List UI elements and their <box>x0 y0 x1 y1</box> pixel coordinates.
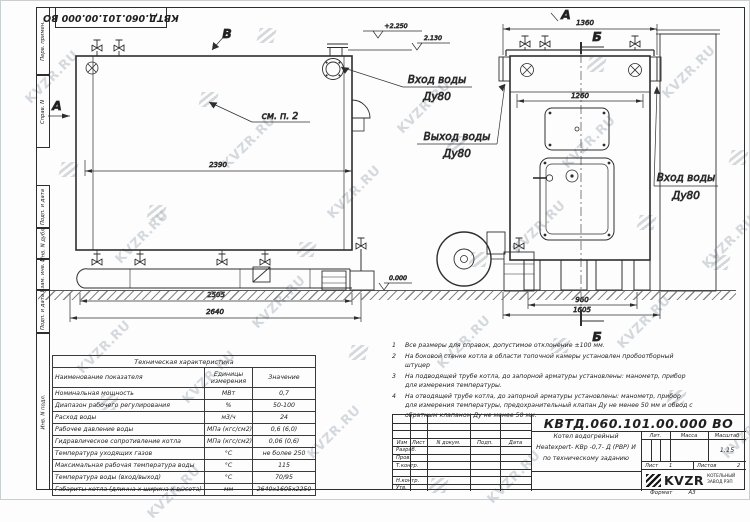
mass-label: Масса <box>670 433 708 439</box>
tb-col-data: Дата <box>501 440 530 446</box>
margin-box-sprav-n: Справ. N <box>36 75 50 148</box>
inlet-label: Вход воды <box>408 74 467 86</box>
tech-table-row: Расход водым3/ч24 <box>53 412 316 424</box>
tech-table-cell: 0,06 (0,6) <box>253 436 316 448</box>
see-note-label: см. п. 2 <box>262 111 299 122</box>
valve-icon <box>630 36 640 47</box>
dim-text: 1605 <box>573 306 591 314</box>
tb-col-ndokum: N докум. <box>428 440 469 446</box>
inlet-dn-label: Ду80 <box>422 91 451 103</box>
tech-table-cell: Температура воды (вход/выход) <box>53 472 205 484</box>
skid-frame <box>77 269 352 288</box>
tech-table-row: Температура воды (вход/выход)°С70/95 <box>53 472 316 484</box>
valve-icon <box>114 40 124 51</box>
note-item: 3На подводящей трубе котла, до запорной … <box>392 372 694 391</box>
outlet-label: Выход воды <box>424 131 491 143</box>
sheet-label: Лист <box>645 463 658 469</box>
dim-text: 2640 <box>206 308 224 316</box>
tech-table-cell: МВт <box>205 388 253 400</box>
tech-table-cell: не более 250 <box>253 448 316 460</box>
boiler-body-side <box>76 56 352 250</box>
support-feet <box>524 260 650 290</box>
view-marker-a: А <box>560 7 571 22</box>
tech-table-cell: 0,7 <box>253 388 316 400</box>
dim-text: 1360 <box>576 19 594 27</box>
section-marker-a: А <box>51 98 62 113</box>
tech-table-cell: мм <box>205 484 253 496</box>
tech-table: Техническая характеристика Наименование … <box>52 355 316 496</box>
drain-valve-icon <box>260 254 270 265</box>
drain-valve-icon <box>217 254 227 265</box>
note-item: 2На боковой стенке котла в области топоч… <box>392 352 694 371</box>
valve-icon <box>92 40 102 51</box>
tech-table-cell: Диапазон рабочего регулирования <box>53 400 205 412</box>
lifting-eye-icon <box>86 62 98 74</box>
tb-row-razrab: Разраб. <box>396 447 416 453</box>
tech-table-cell: °С <box>205 460 253 472</box>
tech-table-row: Габариты котла (длинна х ширина х высота… <box>53 484 316 496</box>
scale-label: Масштаб <box>708 433 746 439</box>
valve-icon <box>520 36 530 47</box>
margin-box-podp-data-2: Подп. и дата <box>36 290 50 333</box>
water-flanges <box>499 57 661 81</box>
tb-col-list: Лист <box>411 440 426 446</box>
tb-col-podp: Подп. <box>471 440 499 446</box>
view-marker-b: В <box>222 26 232 41</box>
doc-number-top-box: КВТД.060.101.00.000 ВО <box>55 7 167 28</box>
tech-table-cell: 70/95 <box>253 472 316 484</box>
tech-table-cell: 115 <box>253 460 316 472</box>
dim-text: 2390 <box>209 161 227 169</box>
tech-table-cell: 50-100 <box>253 400 316 412</box>
flue-duct <box>660 34 716 291</box>
company-logo: KVZR КОТЕЛЬНЫЙ ЗАВОД РЭП <box>641 469 746 491</box>
scale-value: 1:15 <box>708 439 746 461</box>
tech-table-row: Диапазон рабочего регулирования%50-100 <box>53 400 316 412</box>
tech-table-cell: МПа (кгс/см2) <box>205 424 253 436</box>
drain-valve-icon <box>135 254 145 265</box>
margin-box-podp-data: Подп. и дата <box>36 185 50 228</box>
furnace-doors <box>533 108 614 240</box>
tech-table-cell: МПа (кгс/см2) <box>205 436 253 448</box>
tb-col-izm: Изм <box>395 440 409 446</box>
sheets-label: Листов <box>697 463 716 469</box>
inlet-label: Вход воды <box>657 172 716 184</box>
tech-table-header: Наименование показателя <box>53 368 205 388</box>
tb-row-nkontr: Н.контр. <box>396 478 419 484</box>
tb-row-tkontr: Т.контр. <box>396 463 418 469</box>
product-name: Котел водогрейный Heatexpert- КВр -0,7- … <box>531 432 641 465</box>
valve-icon <box>540 36 550 47</box>
section-marker-b-top: Б <box>592 29 602 44</box>
margin-box-inv-dubl: Инв. N дубл. <box>36 228 50 259</box>
logo-text: KVZR <box>664 473 704 488</box>
format-value: А3 <box>688 490 695 496</box>
sheets-value: 2 <box>737 463 740 469</box>
drain-valve-icon <box>92 254 102 265</box>
outlet-elbow <box>352 100 370 118</box>
blower-fan <box>437 232 534 291</box>
tech-table-cell: Расход воды <box>53 412 205 424</box>
doc-number-top: КВТД.060.101.00.000 ВО <box>43 12 179 23</box>
door-bolts <box>544 112 611 237</box>
tb-row-utv: Утв. <box>396 485 407 491</box>
notes-list: 1Все размеры для справок, допустимое отк… <box>392 341 694 421</box>
tech-table-cell: м3/ч <box>205 412 253 424</box>
lit-label: Лит. <box>641 433 670 439</box>
margin-box-inv-podl: Инв. N подл. <box>36 333 50 490</box>
tech-table-row: Номинальная мощностьМВт0,7 <box>53 388 316 400</box>
valve-icon <box>514 238 524 249</box>
tech-table-cell: 0,6 (6,0) <box>253 424 316 436</box>
tech-table-cell: % <box>205 400 253 412</box>
tech-table-row: Температура уходящих газов°Сне более 250 <box>53 448 316 460</box>
tech-table-cell: 2640х1605х2250 <box>253 484 316 496</box>
margin-box-vzam-inv: Взам. инв. N <box>36 259 50 290</box>
tech-table-cell: Гидравлическое сопротивление котла <box>53 436 205 448</box>
tech-table-cell: °С <box>205 448 253 460</box>
tech-table-cell: Максимальная рабочая температура воды <box>53 460 205 472</box>
elevation-text: 2.130 <box>424 35 442 42</box>
tech-table-header: Значение <box>253 368 316 388</box>
sheet-value: 1 <box>669 463 672 469</box>
side-view-dimensions: 2390 2505 2640 +2.250 2.130 0.000 <box>70 23 450 322</box>
elevation-text: +2.250 <box>384 23 407 30</box>
tech-table-cell: 24 <box>253 412 316 424</box>
tb-row-prov: Пров. <box>396 455 411 461</box>
elevation-text: 0.000 <box>389 275 407 282</box>
elevation-marks <box>348 31 450 290</box>
dim-text: 1260 <box>571 92 589 100</box>
tech-table-row: Рабочее давление водыМПа (кгс/см2)0,6 (6… <box>53 424 316 436</box>
tech-table-title: Техническая характеристика <box>53 356 316 368</box>
tech-table-header: Единицы измерения <box>205 368 253 388</box>
format-strip: ФорматА3 <box>650 490 712 496</box>
tech-table-cell: Номинальная мощность <box>53 388 205 400</box>
tech-table-cell: Температура уходящих газов <box>53 448 205 460</box>
kvzr-logo-icon <box>646 474 661 487</box>
ground-hatch <box>38 290 736 300</box>
valve-icon <box>356 238 366 249</box>
tech-table-cell: Рабочее давление воды <box>53 424 205 436</box>
tech-table-cell: Габариты котла (длинна х ширина х высота… <box>53 484 205 496</box>
title-block: Изм Лист N докум. Подп. Дата Разраб. Про… <box>392 414 745 490</box>
inlet-dn-label: Ду80 <box>671 190 700 202</box>
outlet-dn-label: Ду80 <box>442 148 471 160</box>
company-name: КОТЕЛЬНЫЙ ЗАВОД РЭП <box>707 474 735 485</box>
margin-box-perv-primen: Перв. примен. <box>36 7 50 75</box>
doc-number: КВТД.060.101.00.000 ВО <box>531 415 746 431</box>
tech-table-cell: °С <box>205 472 253 484</box>
tech-table-row: Максимальная рабочая температура воды°С1… <box>53 460 316 472</box>
tech-table-row: Гидравлическое сопротивление котлаМПа (к… <box>53 436 316 448</box>
format-label: Формат <box>650 490 672 496</box>
note-item: 1Все размеры для справок, допустимое отк… <box>392 341 694 350</box>
